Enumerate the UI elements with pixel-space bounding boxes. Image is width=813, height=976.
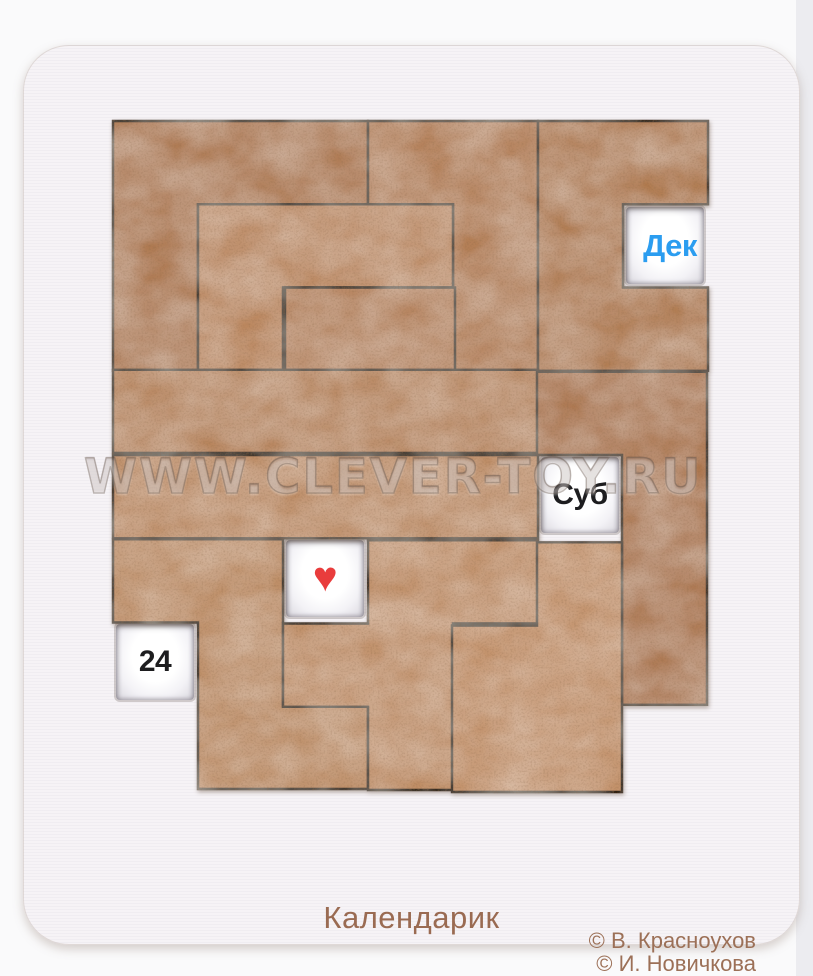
calendar-window-heart: ♥ [286,540,364,616]
window-label-month: Дек [643,230,697,261]
calendar-window-weekday: Суб [541,457,619,533]
window-label-weekday: Суб [552,480,607,510]
puzzle-piece-domino[interactable] [285,288,455,371]
calendar-window-month: Дек [626,207,704,283]
puzzle-piece-bar-upper[interactable] [113,370,538,453]
calendar-window-date: 24 [116,624,194,700]
window-label-heart: ♥ [313,556,337,598]
window-label-date: 24 [139,647,171,677]
puzzle-piece-bar-lower[interactable] [113,455,538,538]
